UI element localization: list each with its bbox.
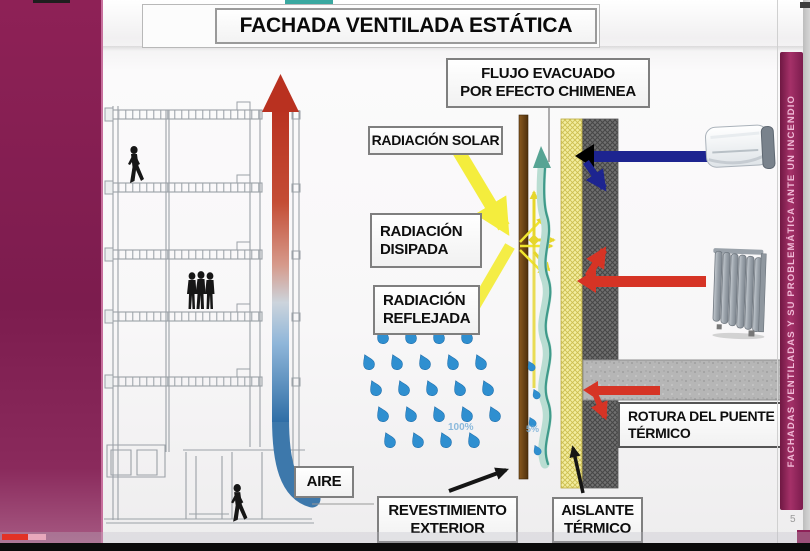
callout-radiacion-disipada: RADIACIÓN DISIPADA (370, 213, 482, 268)
video-progress-bar[interactable] (0, 532, 810, 543)
insulation-layer (561, 119, 582, 488)
air-arrow-shaft (272, 108, 289, 422)
walking-person-upper (128, 146, 144, 183)
walking-person-ground (231, 484, 247, 522)
facade-diagram (0, 0, 810, 551)
chimney-flow-wave (533, 146, 551, 464)
rain-outside-percentage: 100% (448, 422, 474, 433)
player-bottom-bar (0, 543, 810, 551)
building-walls (113, 106, 299, 520)
slide-right-edge (777, 0, 778, 543)
slide-title: FACHADA VENTILADA ESTÁTICA (215, 8, 597, 44)
vertical-course-banner: FACHADAS VENTILADAS Y SU PROBLEMÁTICA AN… (780, 52, 803, 510)
callout-radiacion-solar: RADIACIÓN SOLAR (368, 126, 503, 155)
people-group (187, 271, 215, 309)
vertical-course-banner-text: FACHADAS VENTILADAS Y SU PROBLEMÁTICA AN… (786, 95, 797, 467)
air-conditioner-unit (705, 124, 775, 171)
right-frame-strip (803, 0, 810, 551)
slide-number: 5 (790, 514, 796, 525)
callout-rotura-puente-termico: ROTURA DEL PUENTE TÉRMICO (618, 402, 782, 448)
callout-flujo-evacuado: FLUJO EVACUADO POR EFECTO CHIMENEA (446, 58, 650, 108)
video-progress-buffered (28, 534, 46, 540)
radiator-unit (710, 248, 767, 340)
rain-cavity-percentage: 5% (526, 424, 539, 434)
chimney-flow-arrow-head (533, 146, 551, 168)
people-silhouettes (128, 146, 247, 522)
slide-title-text: FACHADA VENTILADA ESTÁTICA (240, 14, 573, 38)
video-progress-played[interactable] (2, 534, 28, 540)
callout-radiacion-reflejada: RADIACIÓN REFLEJADA (373, 285, 480, 335)
video-frame: FACHADA VENTILADA ESTÁTICA FLUJO EVACUAD… (0, 0, 810, 551)
radiation-node (528, 234, 539, 245)
inner-wall-layer (582, 119, 618, 488)
revestimiento-leader-arrow (449, 470, 506, 491)
rain-drops (360, 326, 543, 456)
callout-aire: AIRE (294, 466, 354, 498)
stack-air-arrow (262, 74, 312, 499)
air-arrow-head (262, 74, 299, 112)
top-right-corner-mark (800, 2, 810, 8)
